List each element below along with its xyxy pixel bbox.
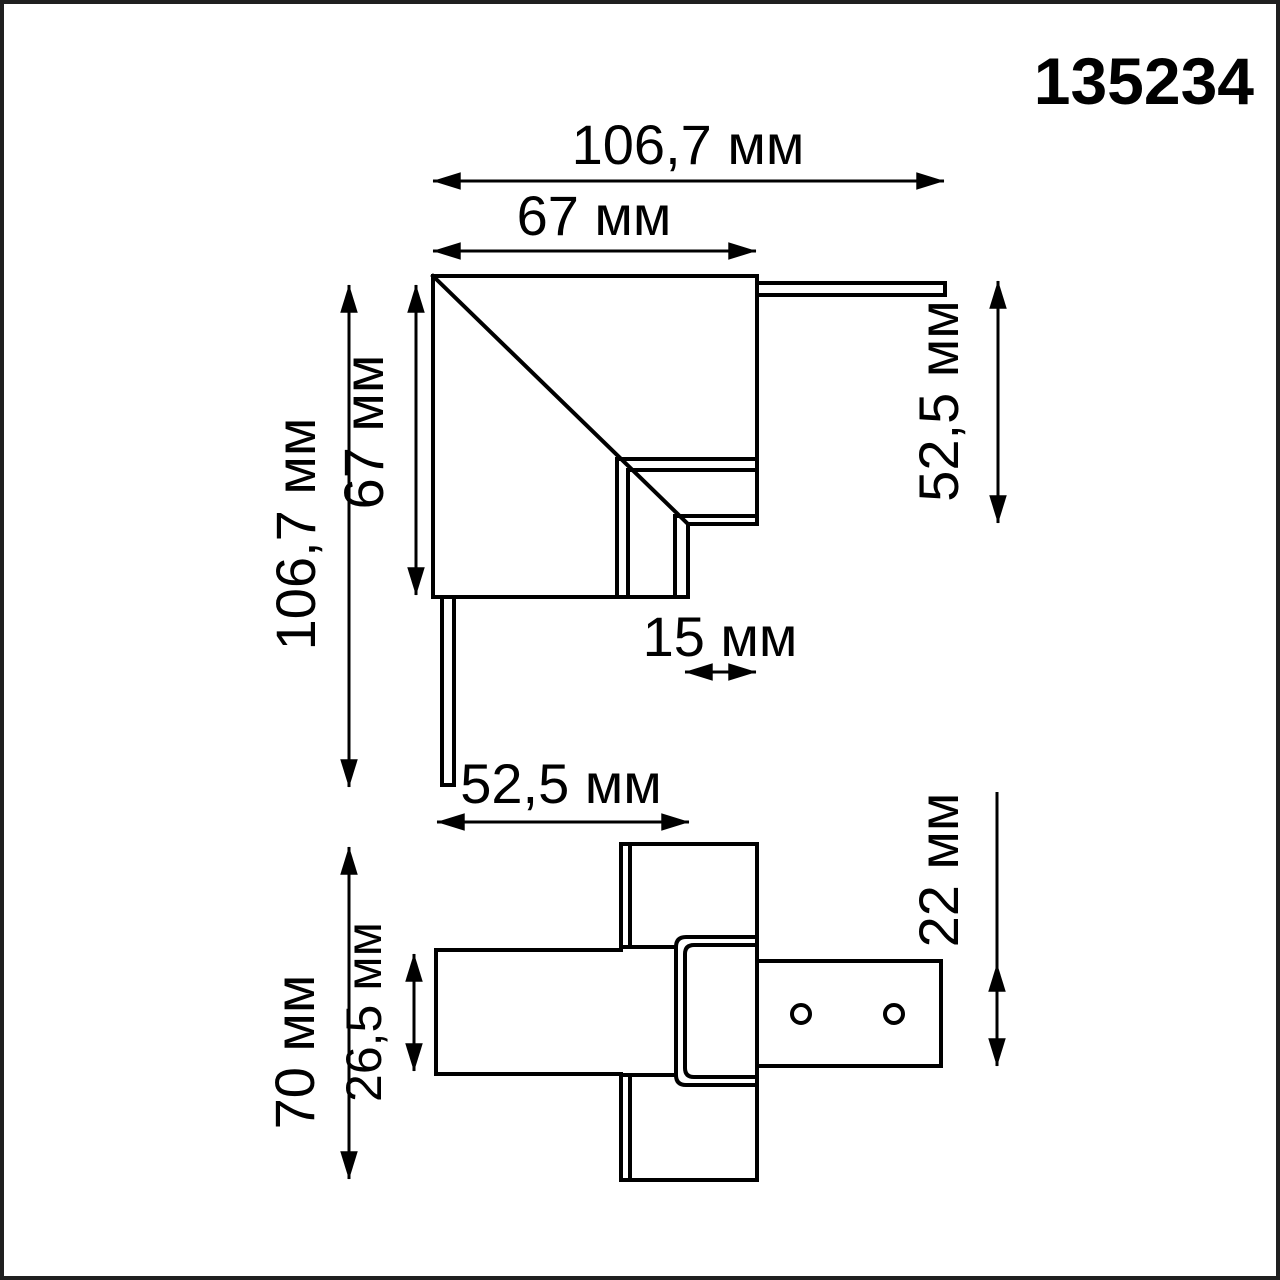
drawing-sheet: 106,7 мм 67 мм 106,7 мм 67 мм 52,5 мм 15…: [0, 0, 1280, 1280]
dim-label-width-top: 52,5 мм: [460, 752, 662, 815]
dim-label-height-total-bottom: 70 мм: [263, 975, 326, 1130]
part-number: 135234: [1034, 44, 1255, 118]
plate-hole-left: [792, 1005, 810, 1023]
dim-label-plate-height: 22 мм: [907, 793, 970, 948]
dim-label-side-right: 52,5 мм: [907, 300, 970, 502]
dimensions-top-view: 106,7 мм 67 мм 106,7 мм 67 мм 52,5 мм 15…: [264, 113, 998, 787]
top-view: [433, 276, 945, 785]
dim-label-height-inner-bottom: 26,5 мм: [336, 922, 392, 1102]
dim-label-width-inner: 67 мм: [517, 184, 672, 247]
top-view-bottom-strip: [442, 597, 454, 785]
bottom-view-bottom-bar: [621, 1074, 757, 1180]
bottom-view-connector-plate: [757, 961, 941, 1066]
bottom-view-bracket-inner: [685, 945, 757, 1077]
bottom-view-bracket-outer: [676, 937, 757, 1085]
dim-label-height-inner: 67 мм: [332, 355, 395, 510]
dim-label-height-total: 106,7 мм: [264, 418, 327, 651]
plate-hole-right: [885, 1005, 903, 1023]
top-view-diagonal: [433, 276, 688, 524]
bottom-view-top-bar: [621, 844, 757, 950]
top-view-right-strip: [757, 283, 945, 295]
dim-label-step: 15 мм: [643, 605, 798, 668]
technical-drawing: 106,7 мм 67 мм 106,7 мм 67 мм 52,5 мм 15…: [4, 4, 1280, 1280]
dim-label-width-total: 106,7 мм: [572, 113, 805, 176]
bottom-view: [436, 844, 941, 1180]
bottom-view-arm: [436, 950, 621, 1074]
